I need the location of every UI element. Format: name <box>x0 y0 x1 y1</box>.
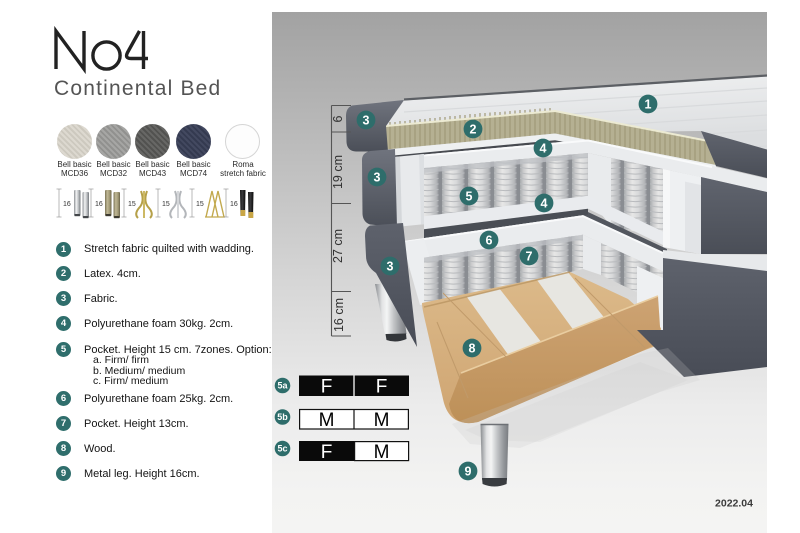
svg-text:2: 2 <box>470 123 477 137</box>
svg-text:9: 9 <box>465 465 472 479</box>
svg-text:M: M <box>374 442 390 463</box>
svg-text:F: F <box>321 377 333 398</box>
svg-text:6: 6 <box>486 234 493 248</box>
svg-text:4: 4 <box>541 197 548 211</box>
svg-text:4: 4 <box>540 142 547 156</box>
svg-text:16 cm: 16 cm <box>332 298 346 332</box>
svg-text:M: M <box>319 410 335 431</box>
svg-text:1: 1 <box>645 98 652 112</box>
svg-text:6: 6 <box>331 115 345 122</box>
svg-text:3: 3 <box>387 260 394 274</box>
svg-text:7: 7 <box>526 250 533 264</box>
svg-text:19 cm: 19 cm <box>331 155 345 189</box>
svg-text:5b: 5b <box>277 412 288 422</box>
svg-text:M: M <box>374 410 390 431</box>
svg-text:2022.04: 2022.04 <box>715 498 753 510</box>
svg-text:5a: 5a <box>277 381 288 391</box>
svg-text:3: 3 <box>363 114 370 128</box>
svg-text:F: F <box>321 442 333 463</box>
svg-text:F: F <box>376 377 388 398</box>
svg-text:8: 8 <box>469 342 476 356</box>
svg-text:5: 5 <box>466 190 473 204</box>
svg-text:3: 3 <box>374 171 381 185</box>
svg-text:5c: 5c <box>277 444 287 454</box>
svg-text:27 cm: 27 cm <box>331 229 345 263</box>
